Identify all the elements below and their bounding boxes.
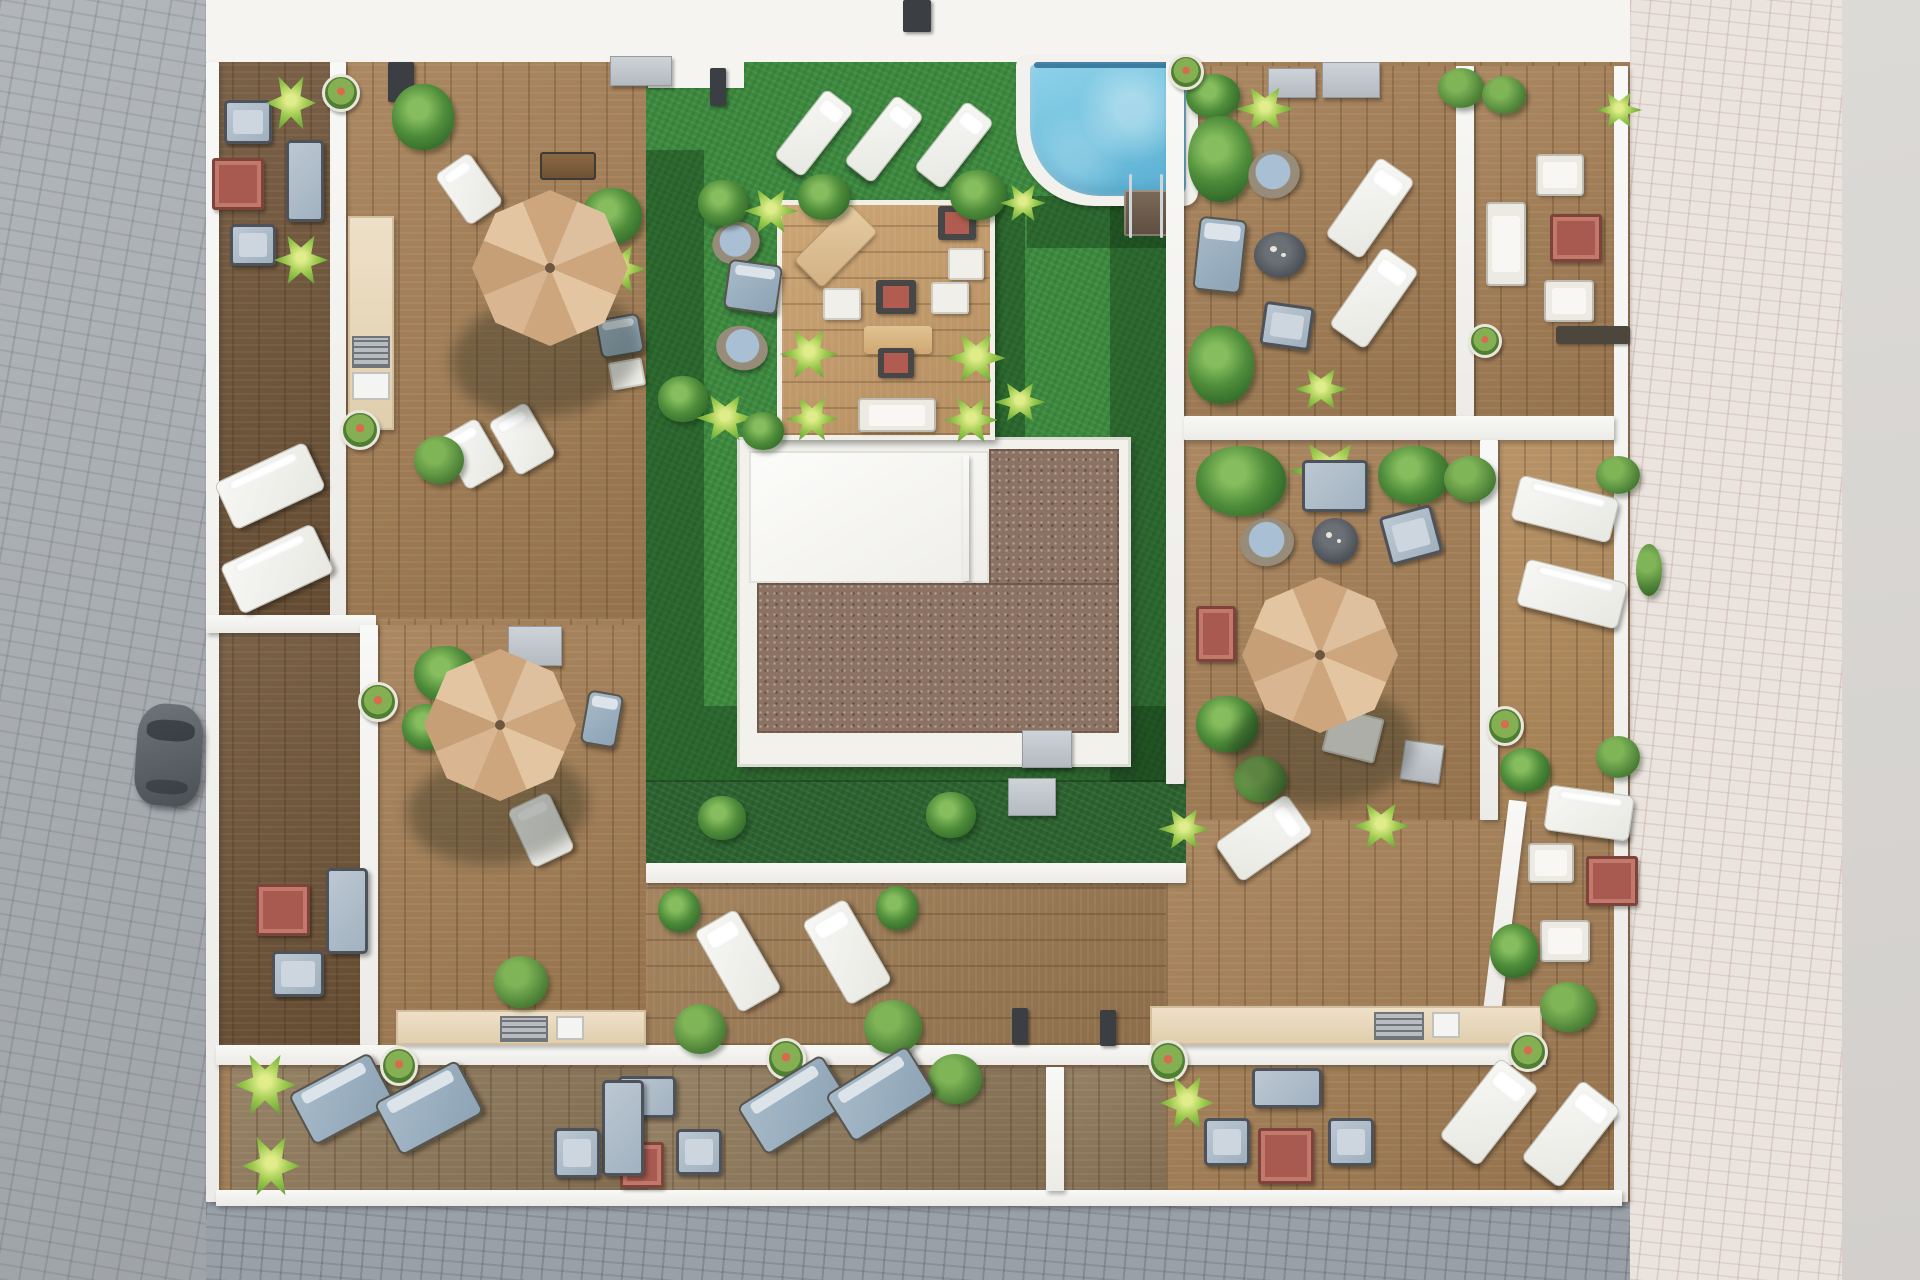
- armchair: [554, 1128, 600, 1178]
- plant: [1490, 924, 1538, 978]
- table-round: [1254, 232, 1306, 278]
- platform-table-dark: [876, 280, 916, 314]
- wall-ne-divider: [1456, 66, 1474, 416]
- pavement-bottom: [206, 1200, 1636, 1280]
- wall-nw-divider: [330, 62, 346, 619]
- flower-pot: [1508, 1032, 1548, 1072]
- sink-se: [1432, 1012, 1460, 1038]
- wall-grass-south: [646, 863, 1186, 883]
- sofa: [326, 868, 368, 954]
- wall-right-horizontal: [1184, 416, 1614, 440]
- bush: [414, 436, 464, 484]
- seat-white: [1544, 280, 1594, 322]
- plant: [798, 174, 850, 220]
- fire-table: [1550, 214, 1602, 262]
- core-pipe: [963, 455, 969, 581]
- bush: [674, 1004, 726, 1054]
- plant: [926, 792, 976, 838]
- plant-pot: [658, 888, 700, 932]
- lamp-post: [710, 68, 726, 106]
- ac-unit: [1008, 778, 1056, 816]
- pavement-right-pavers: [1630, 0, 1842, 1280]
- wall-lawn-east: [1166, 62, 1184, 784]
- armchair: [224, 100, 272, 144]
- plant: [392, 84, 454, 150]
- bush: [864, 1000, 922, 1054]
- flower-pot: [358, 682, 398, 722]
- core-roof-white: [749, 451, 989, 583]
- armchair: [1204, 1118, 1250, 1166]
- counter-se: [1150, 1006, 1542, 1045]
- plant-pot: [876, 886, 918, 930]
- platform-bench-white: [858, 398, 936, 432]
- plant: [742, 412, 784, 450]
- sofa: [1252, 1068, 1322, 1108]
- flower-pot: [1486, 706, 1524, 746]
- lamp-post: [1012, 1008, 1028, 1044]
- flower-pot: [340, 410, 380, 450]
- bench-dark: [1556, 326, 1630, 344]
- fire-table: [1586, 856, 1638, 906]
- plant: [1378, 446, 1450, 504]
- plant: [1500, 748, 1550, 792]
- lamp-post: [1100, 1010, 1116, 1046]
- hedge: [1636, 544, 1662, 596]
- sofa: [1302, 460, 1368, 512]
- pool-edge-line: [1034, 62, 1184, 68]
- seat-white: [1540, 920, 1590, 962]
- platform-seat-white: [931, 282, 969, 314]
- chaise: [1192, 216, 1247, 295]
- fire-table-round: [1312, 518, 1358, 564]
- seat-white: [1536, 154, 1584, 196]
- armchair: [1259, 301, 1315, 352]
- wall-top-cap: [610, 56, 672, 86]
- bench: [540, 152, 596, 180]
- armchair: [272, 951, 324, 997]
- bush: [1596, 456, 1640, 494]
- grill-se: [1374, 1012, 1424, 1040]
- fire-table: [1258, 1128, 1314, 1184]
- flower-pot: [322, 74, 360, 112]
- flower-pot: [380, 1046, 418, 1086]
- plant: [1188, 326, 1254, 404]
- pool-steps: [1124, 190, 1168, 236]
- bush: [1444, 456, 1496, 502]
- wall-east-edge: [1614, 66, 1628, 1202]
- wall-nw-bottom: [206, 615, 376, 633]
- platform-table-white: [948, 248, 984, 280]
- car: [133, 702, 206, 808]
- bush: [1596, 736, 1640, 778]
- wall-south-divider: [1046, 1067, 1064, 1191]
- roof-box: [903, 0, 931, 32]
- bush: [494, 956, 548, 1008]
- picnic-table: [1196, 606, 1236, 662]
- plant: [658, 376, 708, 422]
- grill-tl: [352, 336, 390, 368]
- core-ac-unit: [1022, 730, 1072, 768]
- core-gravel-south: [757, 583, 1119, 733]
- bush: [1438, 68, 1484, 108]
- plant: [698, 796, 746, 840]
- bush: [1482, 76, 1526, 114]
- plant: [698, 180, 748, 226]
- rooftop-aerial-render: [0, 0, 1920, 1280]
- sofa: [286, 140, 324, 222]
- sofa: [602, 1080, 644, 1176]
- armchair: [676, 1129, 722, 1175]
- platform-table-dark: [878, 348, 914, 378]
- sink-sw: [556, 1016, 584, 1040]
- sink-tl: [352, 372, 390, 400]
- flower-pot: [1148, 1040, 1188, 1082]
- bush: [928, 1054, 982, 1104]
- armchair: [1328, 1118, 1374, 1166]
- sofa-white: [1486, 202, 1526, 286]
- lawn-shadow-west: [646, 150, 704, 782]
- armchair: [230, 224, 276, 266]
- grill-sw: [500, 1016, 548, 1042]
- garden-sofa: [723, 258, 783, 315]
- seat-white: [1528, 843, 1574, 883]
- platform-seat-white: [823, 288, 861, 320]
- flower-pot: [1468, 324, 1502, 358]
- fire-table: [212, 158, 264, 210]
- umbrella-right: [1242, 577, 1398, 733]
- pavement-left: [0, 0, 206, 1280]
- terrace-south-east-strip: [1046, 1067, 1166, 1203]
- road-right: [1842, 0, 1920, 1280]
- bush: [1540, 982, 1596, 1032]
- plant: [1188, 116, 1252, 202]
- flower-pot: [1168, 54, 1204, 90]
- plant: [1196, 446, 1286, 516]
- wall-south-edge: [216, 1190, 1622, 1206]
- plant: [950, 170, 1006, 220]
- fire-table: [256, 884, 310, 936]
- ac-unit: [1322, 62, 1380, 98]
